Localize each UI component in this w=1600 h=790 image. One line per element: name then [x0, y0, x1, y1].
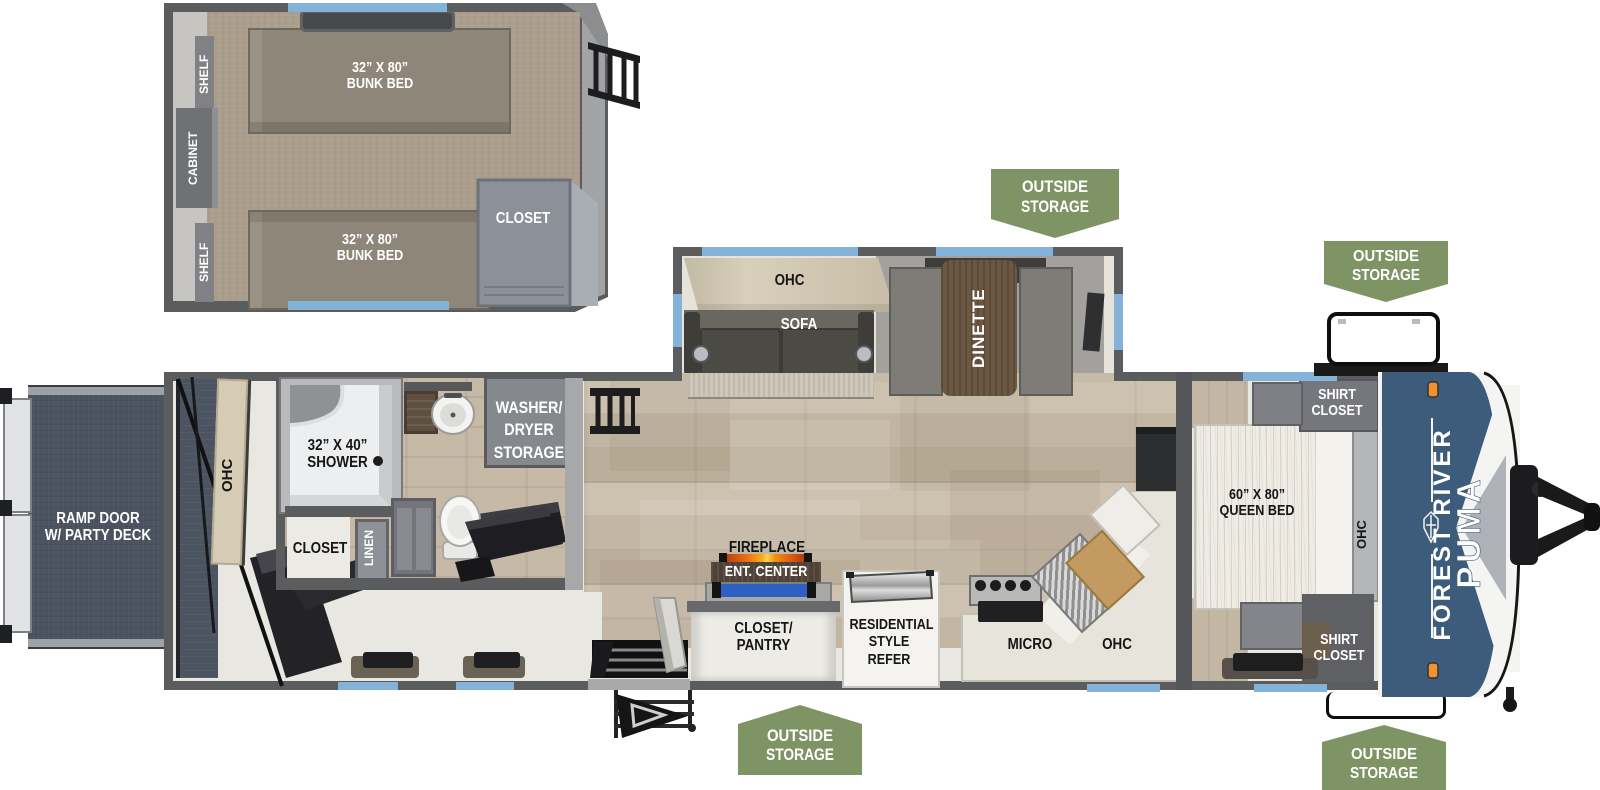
- svg-text:STORAGE: STORAGE: [1352, 267, 1420, 284]
- svg-text:PUMA: PUMA: [1450, 475, 1487, 588]
- svg-text:OUTSIDE: OUTSIDE: [767, 726, 833, 745]
- svg-text:OUTSIDE: OUTSIDE: [1351, 746, 1417, 763]
- svg-text:STORAGE: STORAGE: [1350, 765, 1418, 782]
- svg-text:OUTSIDE: OUTSIDE: [1353, 248, 1419, 265]
- svg-text:STORAGE: STORAGE: [1021, 197, 1089, 216]
- svg-text:STORAGE: STORAGE: [766, 745, 834, 764]
- svg-text:OUTSIDE: OUTSIDE: [1022, 177, 1088, 196]
